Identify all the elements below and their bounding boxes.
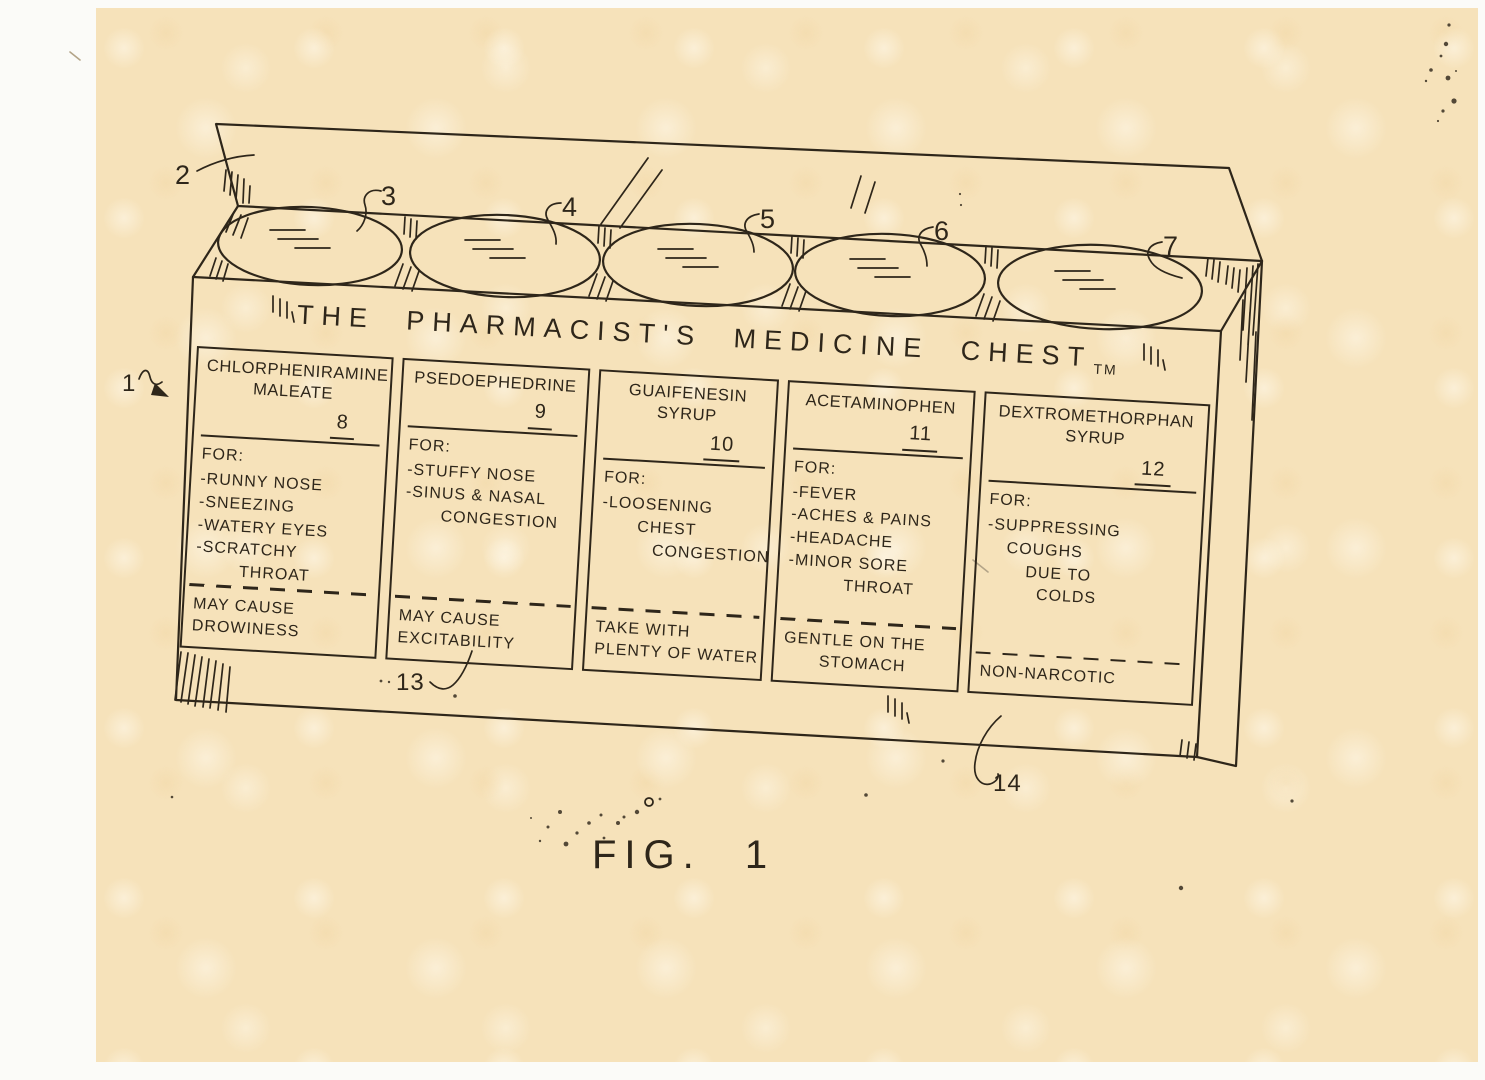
ref-numeral-5: 5 (760, 204, 776, 234)
jar-lid (793, 230, 987, 321)
indication-list: -RUNNY NOSE -SNEEZING -WATERY EYES -SCRA… (194, 469, 375, 592)
panel-chlorpheniramine-maleate: CHLORPHENIRAMINE MALEATE 8 FOR: -RUNNY N… (180, 346, 394, 659)
ref-numeral-4: 4 (562, 192, 578, 222)
ref-numeral-13: 13 (396, 669, 425, 696)
indication-list: -FEVER -ACHES & PAINS -HEADACHE -MINOR S… (787, 481, 959, 604)
ref-numeral-7: 7 (1163, 231, 1179, 261)
indication-list: -SUPPRESSING COUGHS DUE TO COLDS (983, 514, 1192, 616)
panel-note: TAKE WITH PLENTY OF WATER (594, 616, 754, 670)
indication-list: -STUFFY NOSE -SINUS & NASAL CONGESTION (404, 459, 574, 537)
jar-lid (216, 203, 403, 289)
lid-reflection-marks (601, 158, 662, 228)
drug-name: GUAIFENESIN SYRUP (607, 379, 767, 431)
patent-figure-page: 1 2 3 4 5 6 7 13 14 (0, 0, 1485, 1080)
panel-note: NON-NARCOTIC (979, 661, 1184, 695)
leader-line (139, 370, 162, 384)
drug-name: CHLORPHENIRAMINE MALEATE (205, 356, 382, 409)
indication-list: -LOOSENING CHEST CONGESTION (599, 492, 761, 569)
panel-psedoephedrine: PSEDOEPHEDRINE 9 FOR: -STUFFY NOSE -SINU… (385, 358, 590, 670)
tick-marks (888, 696, 909, 723)
panel-note: GENTLE ON THE STOMACH (782, 627, 950, 682)
lid-reflection-marks (851, 176, 875, 213)
leader-line (919, 227, 933, 266)
chest-lid (216, 124, 1262, 261)
ref-numeral-1: 1 (122, 370, 136, 397)
panel-ref-number: 10 (605, 424, 765, 464)
panel-note: MAY CAUSE DROWINESS (191, 593, 368, 648)
panel-guaifenesin-syrup: GUAIFENESIN SYRUP 10 FOR: -LOOSENING CHE… (582, 369, 779, 681)
panel-note: MAY CAUSE EXCITABILITY (397, 605, 565, 660)
trademark-mark: TM (1093, 361, 1118, 378)
ref-numeral-2: 2 (175, 160, 191, 190)
ref-numeral-6: 6 (934, 216, 950, 246)
medicine-label-panels: CHLORPHENIRAMINE MALEATE 8 FOR: -RUNNY N… (180, 346, 1211, 706)
leader-arrowhead (151, 383, 169, 397)
right-face-hatching (1226, 264, 1258, 420)
figure-caption: FIG. 1 (592, 833, 775, 878)
panel-dextromethorphan-syrup: DEXTROMETHORPHAN SYRUP 12 FOR: -SUPPRESS… (967, 391, 1210, 706)
ref-numeral-3: 3 (381, 181, 397, 211)
panel-acetaminophen: ACETAMINOPHEN 11 FOR: -FEVER -ACHES & PA… (771, 380, 976, 692)
leader-line (357, 190, 381, 231)
